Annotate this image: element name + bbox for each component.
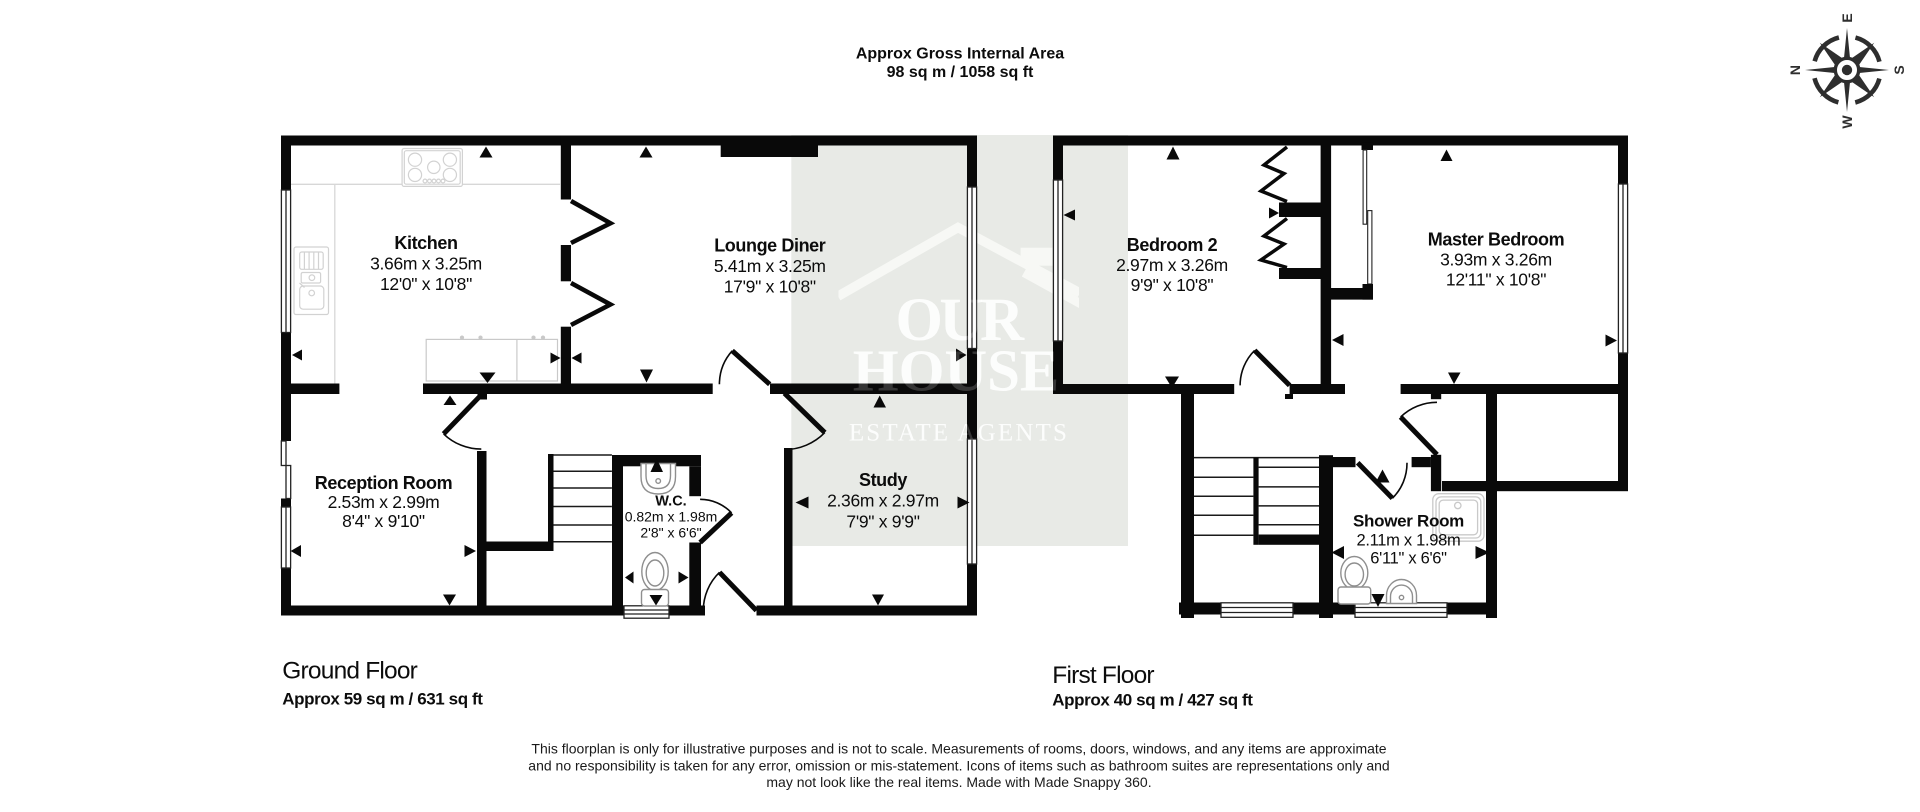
svg-text:Bedroom 2: Bedroom 2 (1127, 235, 1218, 255)
svg-text:2.11m x 1.98m: 2.11m x 1.98m (1356, 532, 1460, 550)
svg-text:Study: Study (859, 470, 907, 490)
svg-text:Approx 59 sq m / 631 sq ft: Approx 59 sq m / 631 sq ft (282, 689, 483, 708)
svg-text:W.C.: W.C. (655, 494, 686, 510)
svg-text:6'11" x 6'6": 6'11" x 6'6" (1370, 550, 1447, 568)
svg-text:N: N (1787, 65, 1803, 75)
svg-text:5.41m x 3.25m: 5.41m x 3.25m (714, 256, 826, 276)
svg-text:W: W (1839, 115, 1855, 129)
svg-text:2.97m x 3.26m: 2.97m x 3.26m (1116, 255, 1228, 275)
svg-text:17'9" x 10'8": 17'9" x 10'8" (724, 277, 816, 297)
svg-text:E: E (1839, 13, 1855, 22)
svg-text:Lounge Diner: Lounge Diner (714, 236, 826, 256)
svg-text:2.53m x 2.99m: 2.53m x 2.99m (328, 492, 440, 512)
svg-text:98 sq m / 1058 sq ft: 98 sq m / 1058 sq ft (887, 64, 1034, 81)
svg-text:Kitchen: Kitchen (394, 233, 457, 253)
svg-text:Reception Room: Reception Room (315, 473, 452, 493)
svg-text:9'9" x 10'8": 9'9" x 10'8" (1131, 275, 1214, 295)
svg-text:0.82m x 1.98m: 0.82m x 1.98m (625, 509, 718, 525)
svg-text:ESTATE AGENTS: ESTATE AGENTS (849, 420, 1069, 447)
svg-text:Approx 40 sq m / 427 sq ft: Approx 40 sq m / 427 sq ft (1052, 691, 1253, 710)
svg-text:Approx Gross Internal Area: Approx Gross Internal Area (856, 46, 1064, 63)
svg-text:may not look like the real ite: may not look like the real items. Made w… (766, 774, 1151, 790)
svg-text:S: S (1891, 65, 1907, 74)
svg-text:and no responsibility is taken: and no responsibility is taken for any e… (528, 757, 1389, 773)
svg-text:2.36m x 2.97m: 2.36m x 2.97m (827, 491, 939, 511)
svg-text:12'0" x 10'8": 12'0" x 10'8" (380, 274, 472, 294)
svg-text:Master Bedroom: Master Bedroom (1428, 230, 1564, 250)
svg-text:3.66m x 3.25m: 3.66m x 3.25m (370, 254, 482, 274)
svg-text:Shower Room: Shower Room (1353, 512, 1464, 531)
svg-text:3.93m x 3.26m: 3.93m x 3.26m (1440, 250, 1552, 270)
svg-text:This floorplan is only for ill: This floorplan is only for illustrative … (531, 741, 1386, 757)
svg-text:First Floor: First Floor (1052, 662, 1154, 689)
svg-text:Ground Floor: Ground Floor (282, 658, 417, 685)
svg-text:7'9" x 9'9": 7'9" x 9'9" (846, 512, 919, 532)
svg-text:12'11" x 10'8": 12'11" x 10'8" (1446, 270, 1546, 290)
svg-text:2'8" x 6'6": 2'8" x 6'6" (640, 525, 701, 541)
svg-text:8'4" x 9'10": 8'4" x 9'10" (342, 511, 425, 531)
